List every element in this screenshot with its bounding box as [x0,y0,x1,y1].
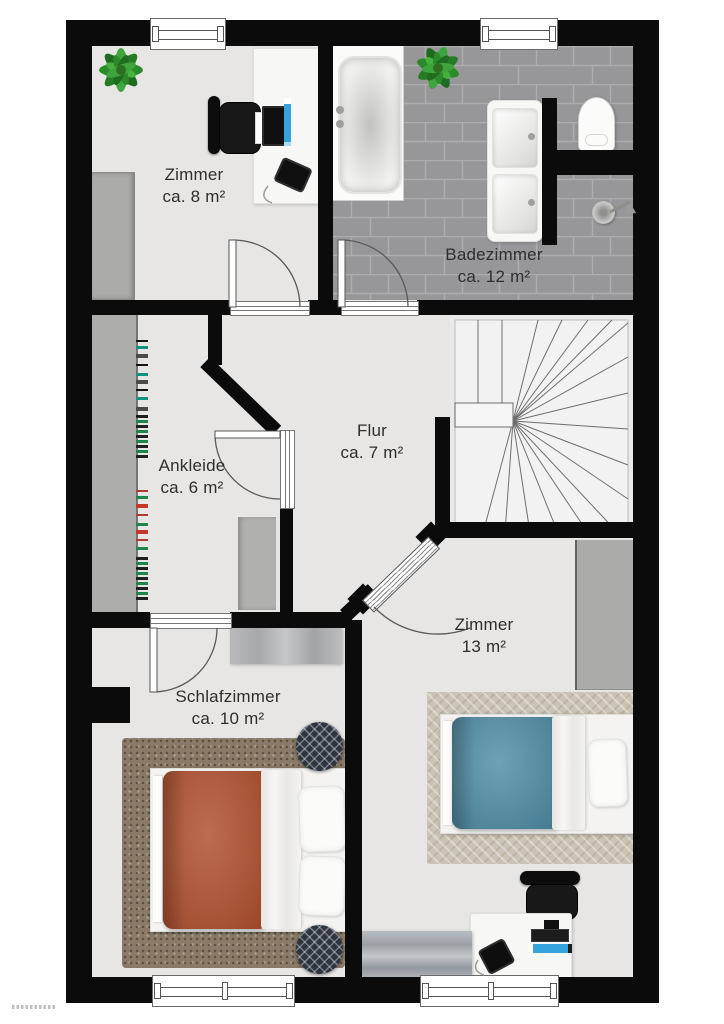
sideboard [362,931,472,977]
wall-outer-bottom [557,977,658,1003]
window-mullion [222,982,228,1000]
wall-stairwell [435,417,450,538]
pillow [298,855,346,917]
room-label-schlafzimmer: Schlafzimmer ca. 10 m² [148,686,308,730]
window-mullion [488,982,494,1000]
wall-interior [440,522,633,538]
clothes-item [136,373,148,376]
room-name: Ankleide [127,455,257,477]
clothes-item [136,514,148,516]
laptop [529,944,572,953]
clothes-item [136,572,148,575]
wall-outer-bottom [293,977,420,1003]
window [152,975,295,1007]
clothes-item [136,340,148,342]
bathtub-faucet-icon [336,120,344,128]
clothes-item [136,397,148,400]
dresser [238,517,276,610]
room-label-flur: Flur ca. 7 m² [307,420,437,464]
window-frame [152,26,159,43]
clothes-item [136,420,148,423]
room-label-ankleide: Ankleide ca. 6 m² [127,455,257,499]
clothes-item [136,557,148,560]
clothes-item [136,562,148,565]
window-frame [422,983,429,1000]
sideboard [230,628,342,664]
wall-bath-partition [542,98,557,245]
window-glazing [154,30,222,39]
bathtub-faucet-icon [336,106,344,114]
clothes-item [136,592,148,595]
door-threshold [280,430,295,509]
room-label-zimmer-13: Zimmer 13 m² [419,614,549,658]
clothes-item [136,380,148,384]
room-area: ca. 8 m² [129,186,259,208]
window-glazing [484,30,554,39]
wall-interior [230,612,352,628]
clothes-item [136,364,148,366]
room-area: ca. 7 m² [307,442,437,464]
window [150,18,226,50]
staircase [450,315,633,538]
pillow [587,738,628,807]
clothes-item [136,577,148,580]
bathtub [338,56,402,194]
clothes-item [136,582,148,585]
room-area: 13 m² [419,636,549,658]
wall-interior [280,505,293,615]
toilet [578,97,615,152]
clothes-item [136,530,148,534]
wall-outer-bottom [66,977,152,1003]
duvet [452,717,556,829]
clothes-item [136,597,148,600]
window [480,18,558,50]
clothes-item [136,567,148,570]
faucet-icon [528,199,535,206]
wall-interior [417,300,633,315]
door-threshold [150,613,232,629]
shower-head-icon [592,201,615,224]
clothes-item [136,407,148,411]
wall-outer-top [224,20,480,46]
wall-outer-left [66,20,92,1003]
window-frame [286,983,293,1000]
room-name: Zimmer [419,614,549,636]
pouf [296,925,343,974]
room-name: Badezimmer [429,244,559,266]
wall-interior [66,612,150,628]
clothes-item [136,430,148,433]
wall-interior [308,300,341,315]
pc-tower [284,98,291,146]
clothes-item [136,539,148,541]
clothes-item [136,435,148,438]
duvet [163,771,263,929]
door-threshold [341,301,419,316]
pillow [298,785,346,853]
window [420,975,559,1007]
office-chair [520,871,580,885]
clothes-item [136,389,148,391]
clothes-item [136,354,148,358]
room-area: ca. 12 m² [429,266,559,288]
window-frame [154,983,161,1000]
clothes-item [136,346,148,349]
room-area: ca. 10 m² [148,708,308,730]
room-label-zimmer-8: Zimmer ca. 8 m² [129,164,259,208]
room-label-badezimmer: Badezimmer ca. 12 m² [429,244,559,288]
clothes-item [136,425,148,428]
room-area: ca. 6 m² [127,477,257,499]
bed-footboard [443,721,452,825]
clothes-item [136,440,148,443]
wall-outer-right [633,20,659,1003]
window-frame [482,26,489,43]
wall-interior [318,46,333,300]
wall-interior [345,620,362,977]
room-name: Flur [307,420,437,442]
faucet-icon [528,133,535,140]
room-name: Zimmer [129,164,259,186]
window-frame [217,26,224,43]
keyboard [531,929,569,942]
clothes-item [136,504,148,508]
clothes-item [136,587,148,590]
clothes-item [136,523,148,526]
duvet-fold [261,770,301,929]
window-frame [550,983,557,1000]
window-frame [549,26,556,43]
clothes-item [136,547,148,550]
wall-interior [92,300,230,315]
room-name: Schlafzimmer [148,686,308,708]
door-threshold [230,301,310,316]
fine-print-watermark [12,1005,56,1009]
chimney [92,687,130,723]
clothes-item [136,415,148,418]
clothes-item [136,450,148,453]
wardrobe [575,540,635,690]
bed-footboard [153,776,162,922]
floor-plan-sheet: Zimmer ca. 8 m² Badezimmer ca. 12 m² Ank… [0,0,724,1024]
wall-bath-partition [557,150,633,175]
clothes-item [136,445,148,448]
duvet-fold [552,716,585,830]
